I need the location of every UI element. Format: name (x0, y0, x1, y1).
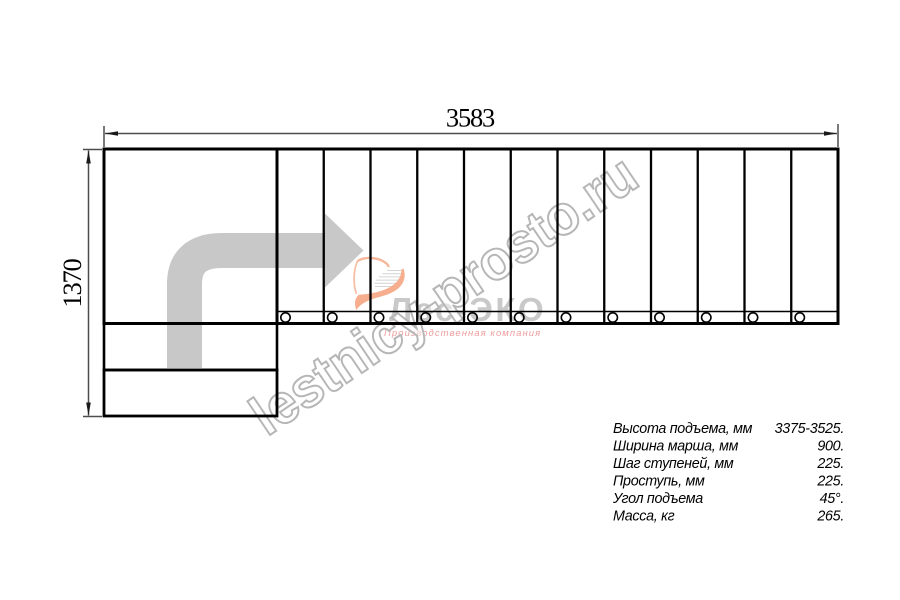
svg-text:Высота подъема, мм: Высота подъема, мм (613, 421, 753, 437)
svg-text:225.: 225. (816, 456, 844, 472)
svg-text:45°.: 45°. (820, 491, 844, 507)
svg-text:Ширина марша, мм: Ширина марша, мм (613, 439, 739, 455)
svg-text:265.: 265. (816, 509, 844, 525)
svg-text:3375-3525.: 3375-3525. (775, 421, 844, 437)
svg-text:lestnicy-prosto.ru: lestnicy-prosto.ru (238, 142, 648, 447)
svg-text:225.: 225. (816, 474, 844, 490)
svg-text:Шаг ступеней, мм: Шаг ступеней, мм (613, 456, 734, 472)
svg-text:Масса, кг: Масса, кг (613, 509, 675, 525)
svg-text:Угол подъема: Угол подъема (612, 491, 703, 507)
svg-text:3583: 3583 (446, 103, 495, 133)
svg-text:Проступь, мм: Проступь, мм (613, 474, 705, 490)
svg-text:1370: 1370 (57, 258, 87, 307)
svg-text:900.: 900. (817, 439, 844, 455)
